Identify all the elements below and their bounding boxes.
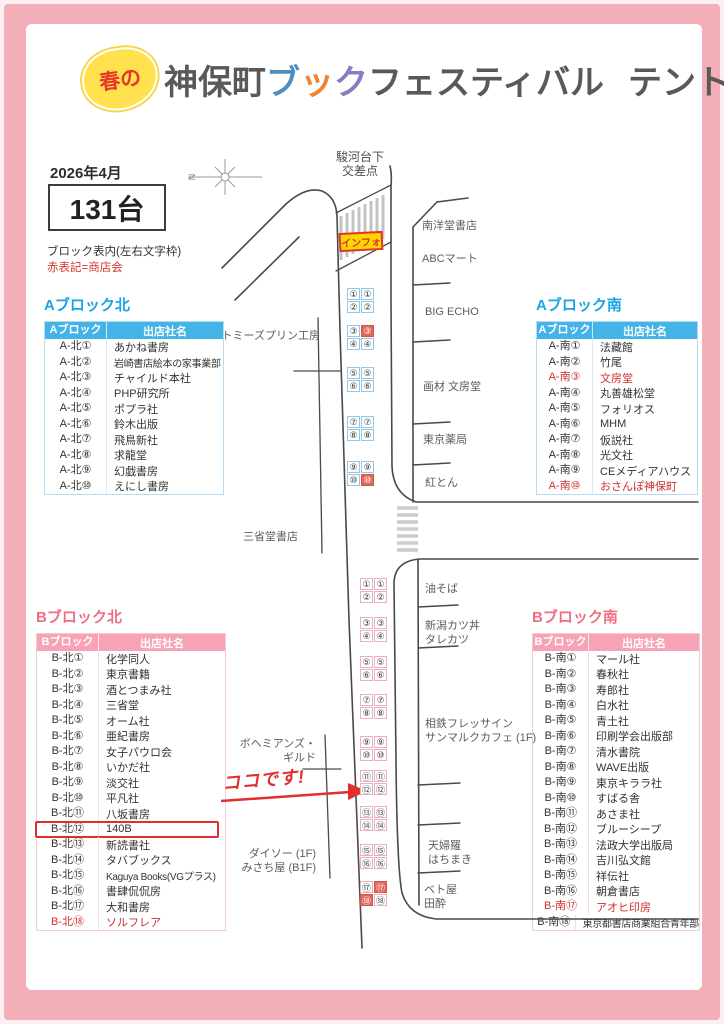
booth-id: B-北⑯ (37, 884, 99, 900)
tent-group: ⑰⑰⑱⑱ (360, 881, 387, 906)
west-frontage-a (294, 318, 340, 553)
booth-id: B-北⑬ (37, 837, 99, 853)
tent-cell: ② (360, 591, 373, 603)
page-title: テント・ワゴン配置図 (628, 55, 724, 104)
tent-cell: ⑭ (374, 819, 387, 831)
label-betoya: ベト屋 田酔 (424, 884, 457, 911)
label-abc-mart: ABCマート (422, 253, 478, 267)
label-sanseido: 三省堂書店 (243, 531, 298, 545)
exhibitor-name: 化学同人 (99, 651, 150, 667)
tent-cell: ⑨ (374, 736, 387, 748)
tent-cell: ⑥ (374, 669, 387, 681)
tent-cell: ⑪ (360, 770, 373, 782)
exhibitor-name: 酒とつまみ社 (99, 682, 172, 698)
tent-cell: ⑰ (360, 881, 373, 893)
tent-cell: ⑤ (361, 367, 374, 379)
tent-cell: ⑤ (360, 656, 373, 668)
booth-id: B-北⑰ (37, 899, 99, 915)
exhibitor-name: オーム社 (99, 713, 150, 729)
booth-id: B-北⑭ (37, 853, 99, 869)
booth-id: B-北⑮ (37, 868, 99, 884)
tent-cell: ⑥ (361, 380, 374, 392)
exhibitor-name: ポプラ社 (107, 401, 158, 417)
booth-id: A-北⑦ (45, 432, 107, 448)
tent-group: ⑮⑮⑯⑯ (360, 844, 387, 869)
booth-id: B-北② (37, 667, 99, 683)
tent-cell: ⑧ (360, 707, 373, 719)
tent-cell: ③ (360, 617, 373, 629)
tent-cell: ② (361, 301, 374, 313)
label-daiso: ダイソー (1F) みさち屋 (B1F) (198, 848, 316, 875)
exhibitor-name: 140B (99, 823, 132, 835)
exhibitor-name: 求龍堂 (107, 447, 147, 463)
booth-id: A-北③ (45, 370, 107, 386)
tent-cell: ④ (347, 338, 360, 350)
tent-cell: ⑦ (360, 694, 373, 706)
booth-id: B-北⑩ (37, 791, 99, 807)
exhibitor-name: 東京書籍 (99, 666, 150, 682)
exhibitor-name: 書肆侃侃房 (99, 883, 161, 899)
booth-id: A-北⑥ (45, 417, 107, 433)
crosswalk-side-stripes (397, 508, 418, 550)
exhibitor-name: 亜紀書房 (99, 728, 150, 744)
exhibitor-name: 三省堂 (99, 697, 139, 713)
tent-cell: ⑬ (374, 806, 387, 818)
booth-id: A-北⑤ (45, 401, 107, 417)
booth-id: B-北⑫ (37, 822, 99, 838)
tent-group: ⑨⑨⑩⑩ (347, 461, 374, 486)
booth-id: A-北④ (45, 386, 107, 402)
tent-cell: ⑩ (347, 474, 360, 486)
booth-id: A-北② (45, 355, 107, 371)
flyer-page: 春の 神保町ブックフェスティバル テント・ワゴン配置図 2026年4月 131台… (0, 0, 724, 1024)
tent-group: ⑦⑦⑧⑧ (360, 694, 387, 719)
label-bohemians: ボヘミアンズ・ ギルド (198, 738, 316, 765)
booth-id: A-北⑧ (45, 448, 107, 464)
exhibitor-name: いかだ社 (99, 759, 150, 775)
tent-cell: ⑩ (361, 474, 374, 486)
tent-group: ①①②② (360, 578, 387, 603)
east-frontage-b (418, 559, 419, 905)
compass-icon: N (187, 159, 262, 195)
booth-id: B-北⑧ (37, 760, 99, 776)
label-beniton: 紅とん (425, 477, 458, 491)
exhibitor-name: えにし書房 (107, 478, 169, 494)
logo-book-char: ブ (266, 64, 300, 102)
festival-logo: 春の 神保町ブックフェスティバル テント・ワゴン配置図 (84, 46, 724, 112)
tent-cell: ⑧ (374, 707, 387, 719)
label-nanyodo: 南洋堂書店 (422, 220, 477, 234)
label-tommys: トミーズプリン工房 (200, 330, 320, 344)
tent-cell: ⑰ (374, 881, 387, 893)
booth-id: B-北③ (37, 682, 99, 698)
tent-cell: ① (360, 578, 373, 590)
exhibitor-name: 鈴木出版 (107, 416, 158, 432)
tent-cell: ⑫ (374, 783, 387, 795)
label-gazai-bunbodo: 画材 文房堂 (423, 381, 481, 395)
booth-id: B-北① (37, 651, 99, 667)
tent-cell: ⑧ (361, 429, 374, 441)
exhibitor-name: PHP研究所 (107, 385, 170, 401)
exhibitor-name: 新読書社 (99, 837, 150, 853)
tent-group: ⑦⑦⑧⑧ (347, 416, 374, 441)
tent-cell: ④ (374, 630, 387, 642)
exhibitor-name: 飛鳥新社 (107, 432, 158, 448)
exhibitor-name: タバブックス (99, 852, 172, 868)
booth-id: A-北⑨ (45, 463, 107, 479)
legend-line-1: ブロック表内(左右文字枠) (47, 243, 181, 259)
logo-book-char: ク (334, 64, 368, 102)
tent-cell: ③ (347, 325, 360, 337)
label-big-echo: BIG ECHO (425, 306, 479, 320)
tent-cell: ⑥ (360, 669, 373, 681)
label-tokyo-yakkyoku: 東京薬局 (423, 434, 467, 448)
exhibitor-name: 平凡社 (99, 790, 139, 806)
booth-id: A-北⑩ (45, 479, 107, 495)
label-aburasoba: 油そば (425, 583, 458, 597)
exhibitor-name: 女子パウロ会 (99, 744, 172, 760)
tent-group: ⑤⑤⑥⑥ (360, 656, 387, 681)
tent-cell: ③ (361, 325, 374, 337)
legend-line-2: 赤表記=商店会 (47, 259, 123, 275)
info-booth: インフォ (339, 231, 384, 252)
tent-cell: ③ (374, 617, 387, 629)
label-sotetsu: 相鉄フレッサイン サンマルクカフェ (1F) (425, 718, 536, 745)
tent-cell: ② (347, 301, 360, 313)
exhibitor-name: 淡交社 (99, 775, 139, 791)
tent-cell: ⑦ (374, 694, 387, 706)
east-frontage-a (413, 198, 468, 502)
tent-cell: ⑨ (347, 461, 360, 473)
tent-cell: ⑯ (360, 857, 373, 869)
tent-group: ⑪⑪⑫⑫ (360, 770, 387, 795)
booth-id: B-北⑱ (37, 915, 99, 931)
exhibitor-name: ソルフレア (99, 914, 161, 930)
logo-book-char: ッ (300, 64, 334, 102)
tent-cell: ⑫ (360, 783, 373, 795)
tent-cell: ⑥ (347, 380, 360, 392)
label-intersection: 駿河台下 交差点 (326, 150, 394, 178)
booth-id: B-北⑪ (37, 806, 99, 822)
exhibitor-name: 大和書房 (99, 899, 150, 915)
tent-group: ③③④④ (360, 617, 387, 642)
tent-group: ⑨⑨⑩⑩ (360, 736, 387, 761)
tent-cell: ⑦ (361, 416, 374, 428)
tent-cell: ⑨ (361, 461, 374, 473)
date-label: 2026年4月 (50, 162, 122, 183)
tent-cell: ④ (360, 630, 373, 642)
booth-id: A-北① (45, 339, 107, 355)
booth-id: B-北⑨ (37, 775, 99, 791)
tent-cell: ⑱ (360, 894, 373, 906)
label-tarekatsu: 新潟カツ丼 タレカツ (425, 620, 480, 647)
tent-cell: ⑮ (374, 844, 387, 856)
exhibitor-name: あかね書房 (107, 339, 169, 355)
logo-jinbocho: 神保町 (164, 64, 266, 102)
exhibitor-name: チャイルド本社 (107, 370, 191, 386)
tent-cell: ⑩ (374, 749, 387, 761)
tent-group: ③③④④ (347, 325, 374, 350)
tent-cell: ④ (361, 338, 374, 350)
booth-id: B-北⑦ (37, 744, 99, 760)
tent-cell: ① (347, 288, 360, 300)
tent-cell: ① (361, 288, 374, 300)
tent-cell: ⑪ (374, 770, 387, 782)
exhibitor-name: 八坂書房 (99, 806, 150, 822)
tent-cell: ⑭ (360, 819, 373, 831)
spring-badge: 春の (80, 45, 159, 112)
tent-cell: ⑨ (360, 736, 373, 748)
booth-id: B-北⑤ (37, 713, 99, 729)
tent-cell: ② (374, 591, 387, 603)
logo-book: ブック (266, 64, 368, 102)
tent-cell: ⑬ (360, 806, 373, 818)
exhibitor-name: 幻戯書房 (107, 463, 158, 479)
tent-cell: ⑧ (347, 429, 360, 441)
booth-id: B-北⑥ (37, 729, 99, 745)
tent-cell: ⑮ (360, 844, 373, 856)
label-tempura: 天婦羅 はちまき (428, 840, 472, 867)
tent-group: ⑤⑤⑥⑥ (347, 367, 374, 392)
tent-count-box: 131台 (48, 184, 166, 231)
tent-group: ①①②② (347, 288, 374, 313)
road-lines (222, 166, 698, 948)
logo-title: 神保町ブックフェスティバル (164, 55, 604, 104)
tent-cell: ① (374, 578, 387, 590)
street-west-edge (222, 190, 362, 948)
svg-text:N: N (187, 174, 197, 181)
logo-festival: フェスティバル (368, 64, 604, 102)
tent-group: ⑬⑬⑭⑭ (360, 806, 387, 831)
tent-cell: ⑤ (347, 367, 360, 379)
tent-cell: ⑩ (360, 749, 373, 761)
tent-cell: ⑯ (374, 857, 387, 869)
street-east-edge-upper (390, 166, 698, 502)
tent-cell: ⑤ (374, 656, 387, 668)
tent-cell: ⑱ (374, 894, 387, 906)
tent-cell: ⑦ (347, 416, 360, 428)
booth-id: B-北④ (37, 698, 99, 714)
